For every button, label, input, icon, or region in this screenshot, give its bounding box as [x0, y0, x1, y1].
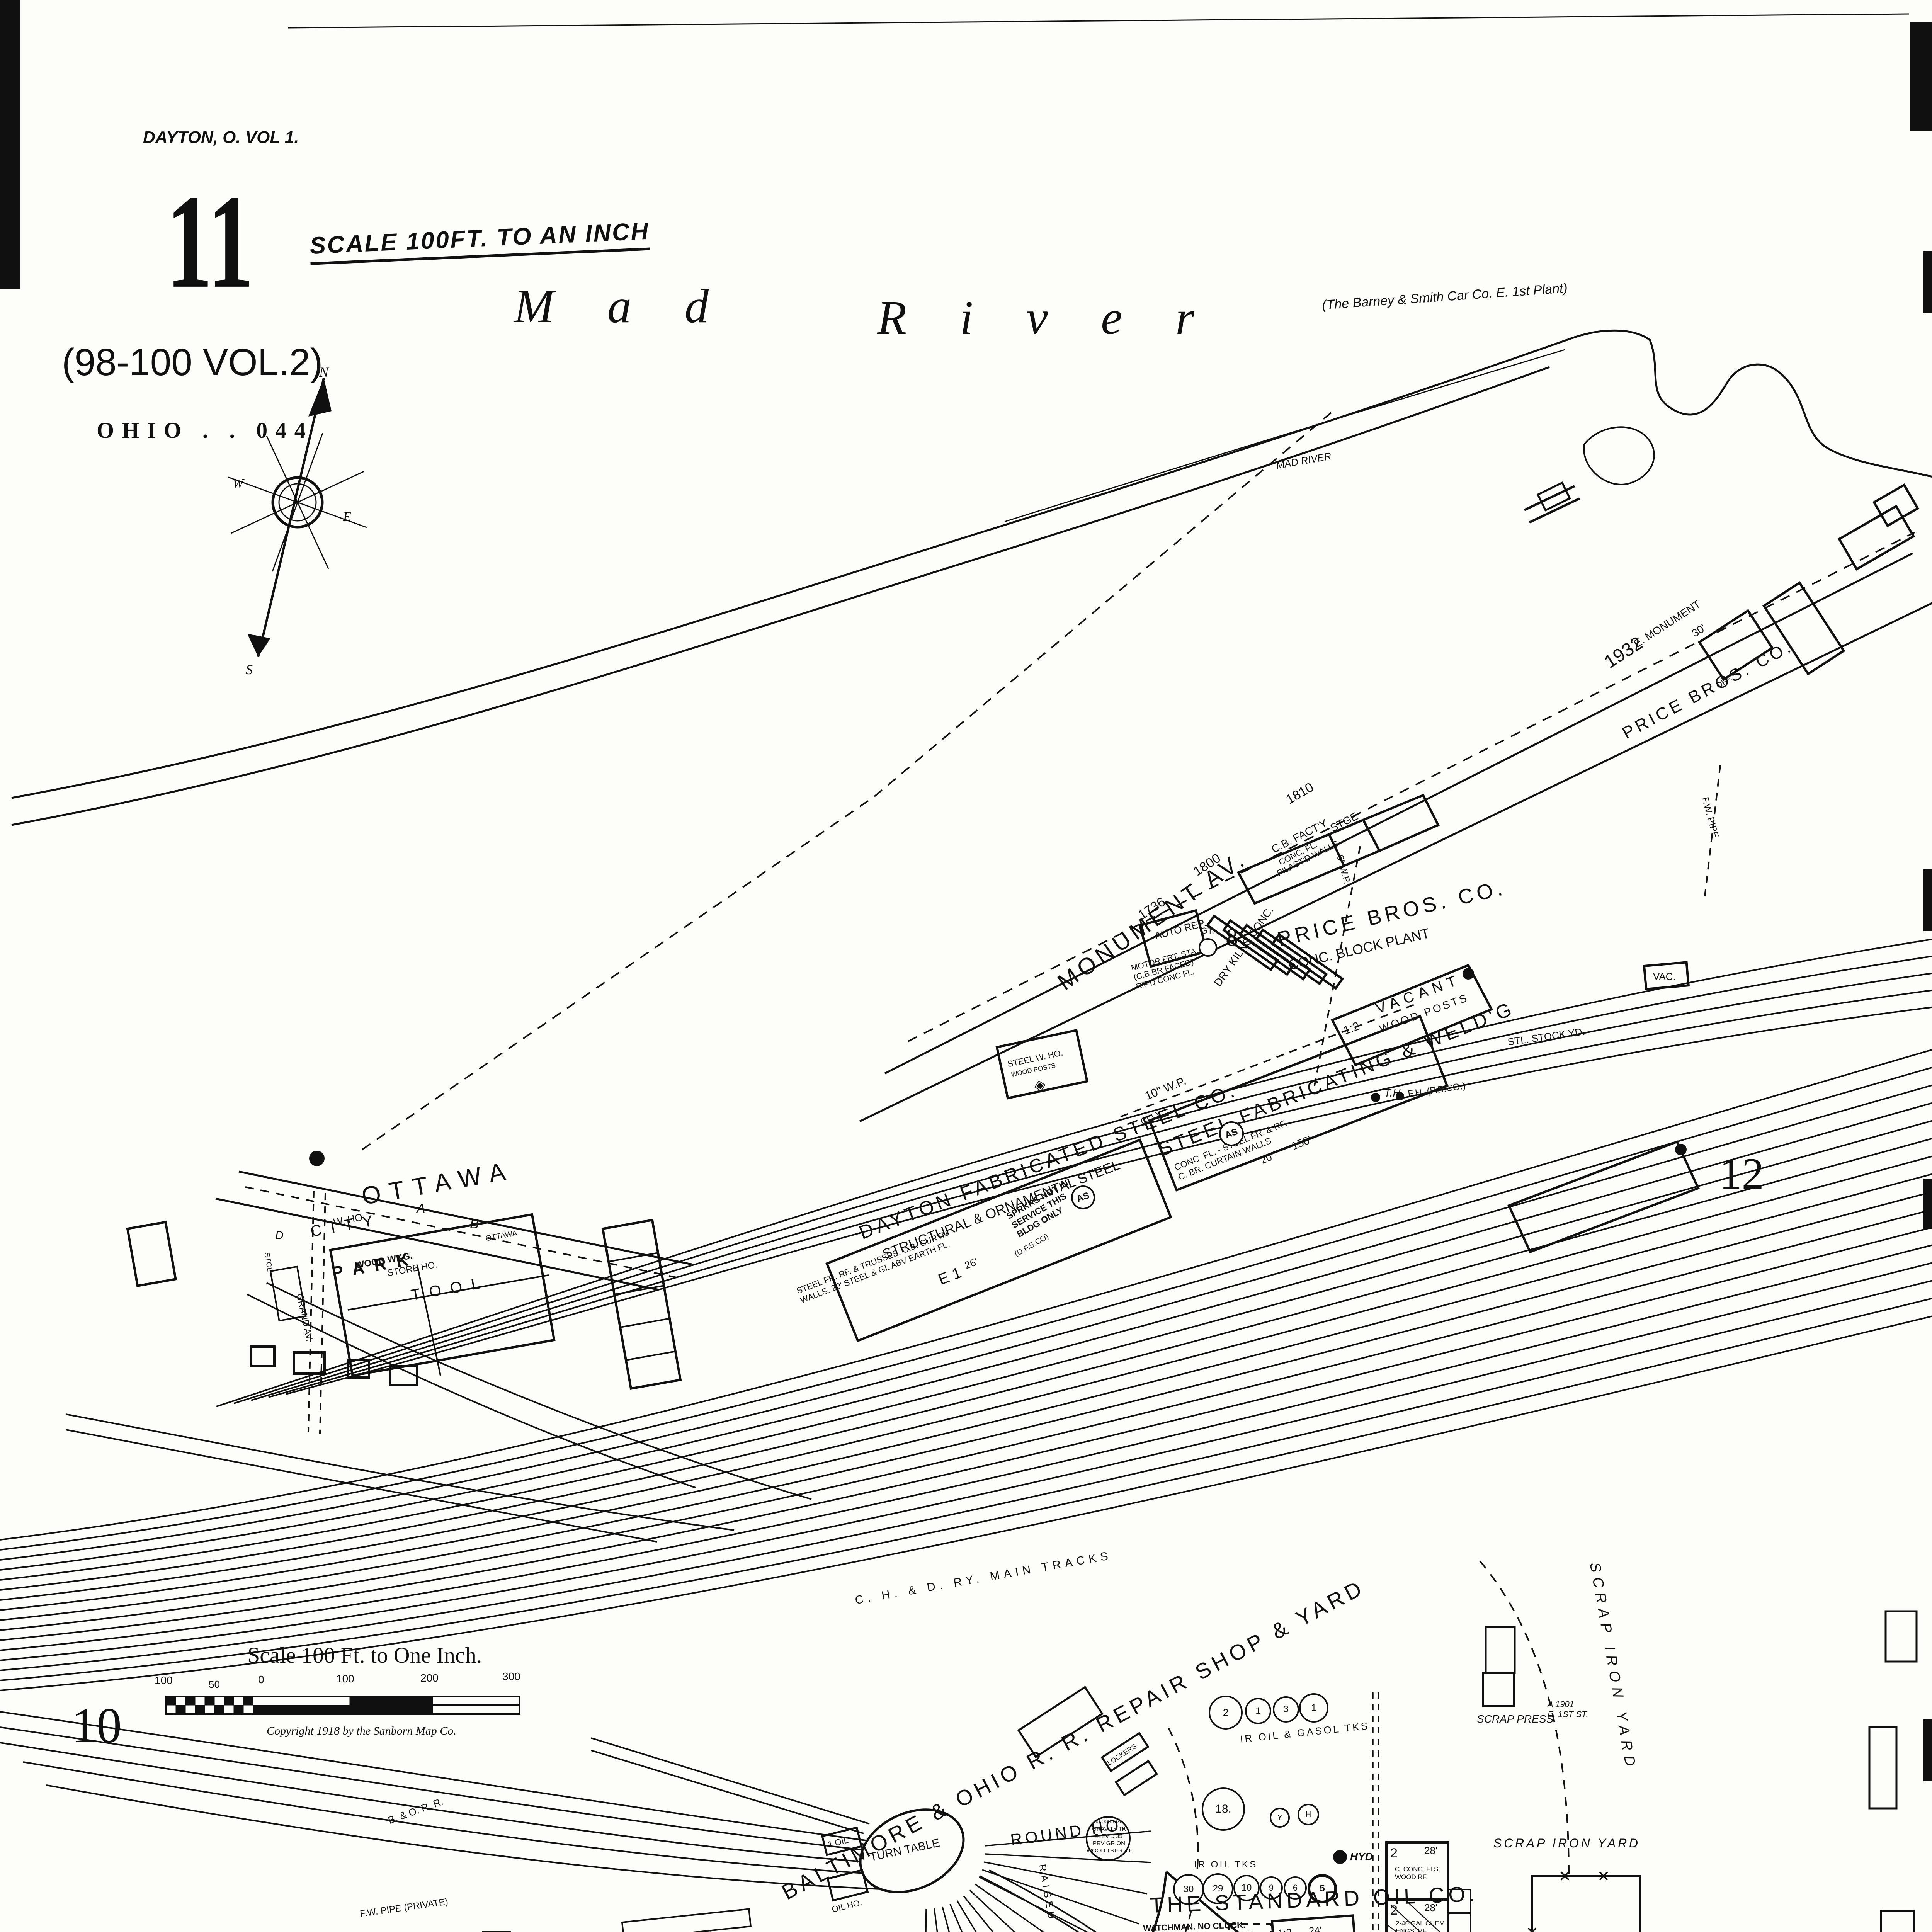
col-bldg-28b: 28': [1424, 1902, 1437, 1914]
building-number-8: 8: [1226, 923, 1238, 952]
scalebar-tick-200: 200: [420, 1672, 439, 1684]
scrap-yard: [1480, 1561, 1917, 1932]
col-bldg-2b: 2: [1390, 1903, 1398, 1918]
gasoline-tank-circle: [1199, 938, 1217, 957]
col-bldg-chem: 2-40 GAL CHEM ENGS. RF.: [1396, 1920, 1445, 1932]
monument-av-lines: [359, 413, 1932, 1151]
scalebar-tick-50: 50: [209, 1679, 220, 1690]
scalebar-tick-300: 300: [502, 1670, 520, 1683]
scalebar-copyright: Copyright 1918 by the Sanborn Map Co.: [267, 1724, 456, 1738]
compass-s: S: [246, 662, 253, 678]
th-dot: [1371, 1093, 1380, 1102]
mad-river-banks: [12, 330, 1932, 825]
hyd-dot: [1333, 1850, 1347, 1864]
compass-e: E: [343, 509, 351, 525]
scale-bar: [166, 1696, 520, 1714]
col-bldg-2a: 2: [1390, 1845, 1398, 1861]
lot-letter-d: D: [275, 1229, 284, 1242]
col-bldg-concfls: C. CONC. FLS. WOOD RF.: [1395, 1866, 1440, 1881]
lot-letter-a: A: [417, 1201, 425, 1216]
page-ref-10: 10: [71, 1696, 122, 1755]
col-bldg-28a: 28': [1424, 1845, 1437, 1857]
lot-letter-b: B: [470, 1216, 479, 1232]
gasol-tank-1: 2: [1209, 1696, 1243, 1730]
scalebar-tick-100a: 100: [155, 1674, 173, 1687]
gasol-tank-4: 1: [1299, 1693, 1328, 1723]
scrap-yard-horizontal-label: SCRAP IRON YARD: [1493, 1836, 1640, 1851]
page-ref-12: 12: [1719, 1148, 1764, 1200]
scalebar-tick-0: 0: [258, 1673, 264, 1686]
oil-tanks-caption: IR OIL TKS: [1194, 1859, 1258, 1870]
tank-y: Y: [1270, 1808, 1290, 1828]
compass-n: N: [319, 364, 328, 380]
river-name-river: River: [877, 290, 1247, 347]
compass-w: W: [233, 476, 243, 492]
sheet-range: (98-100 VOL.2): [62, 340, 323, 385]
river-name-mad: Mad: [514, 278, 762, 335]
fill-ratio: 1:2: [1277, 1926, 1292, 1932]
gravity-tank-note: 50,000 GAL GRAVITY TK ELEV'D 35' PRV GR …: [1087, 1818, 1131, 1855]
fill-dim: 24': [1308, 1924, 1322, 1932]
gasol-tank-2: 1: [1245, 1698, 1271, 1724]
sheet-number: 11: [166, 162, 254, 321]
scrap-address-label: A 1901 E. 1ST ST.: [1548, 1699, 1588, 1719]
tank-h: H: [1298, 1804, 1319, 1825]
scalebar-title: Scale 100 Ft. to One Inch.: [247, 1642, 482, 1668]
vac-label: VAC.: [1653, 971, 1676, 983]
sanborn-map-sheet: DAYTON, O. VOL 1. 11 (98-100 VOL.2) OHIO…: [0, 0, 1932, 1932]
volume-line: DAYTON, O. VOL 1.: [143, 128, 299, 148]
ottawa-dot: [309, 1151, 325, 1166]
th-label: T.H.: [1384, 1087, 1403, 1099]
tank-18: 18.: [1202, 1787, 1245, 1831]
gasol-tank-3: 3: [1273, 1696, 1299, 1723]
scrap-press-label: SCRAP PRESS: [1477, 1713, 1553, 1725]
catalog-stamp: OHIO . . 044: [97, 417, 313, 444]
scalebar-tick-100b: 100: [336, 1672, 354, 1685]
hyd-label: HYD: [1350, 1850, 1373, 1863]
